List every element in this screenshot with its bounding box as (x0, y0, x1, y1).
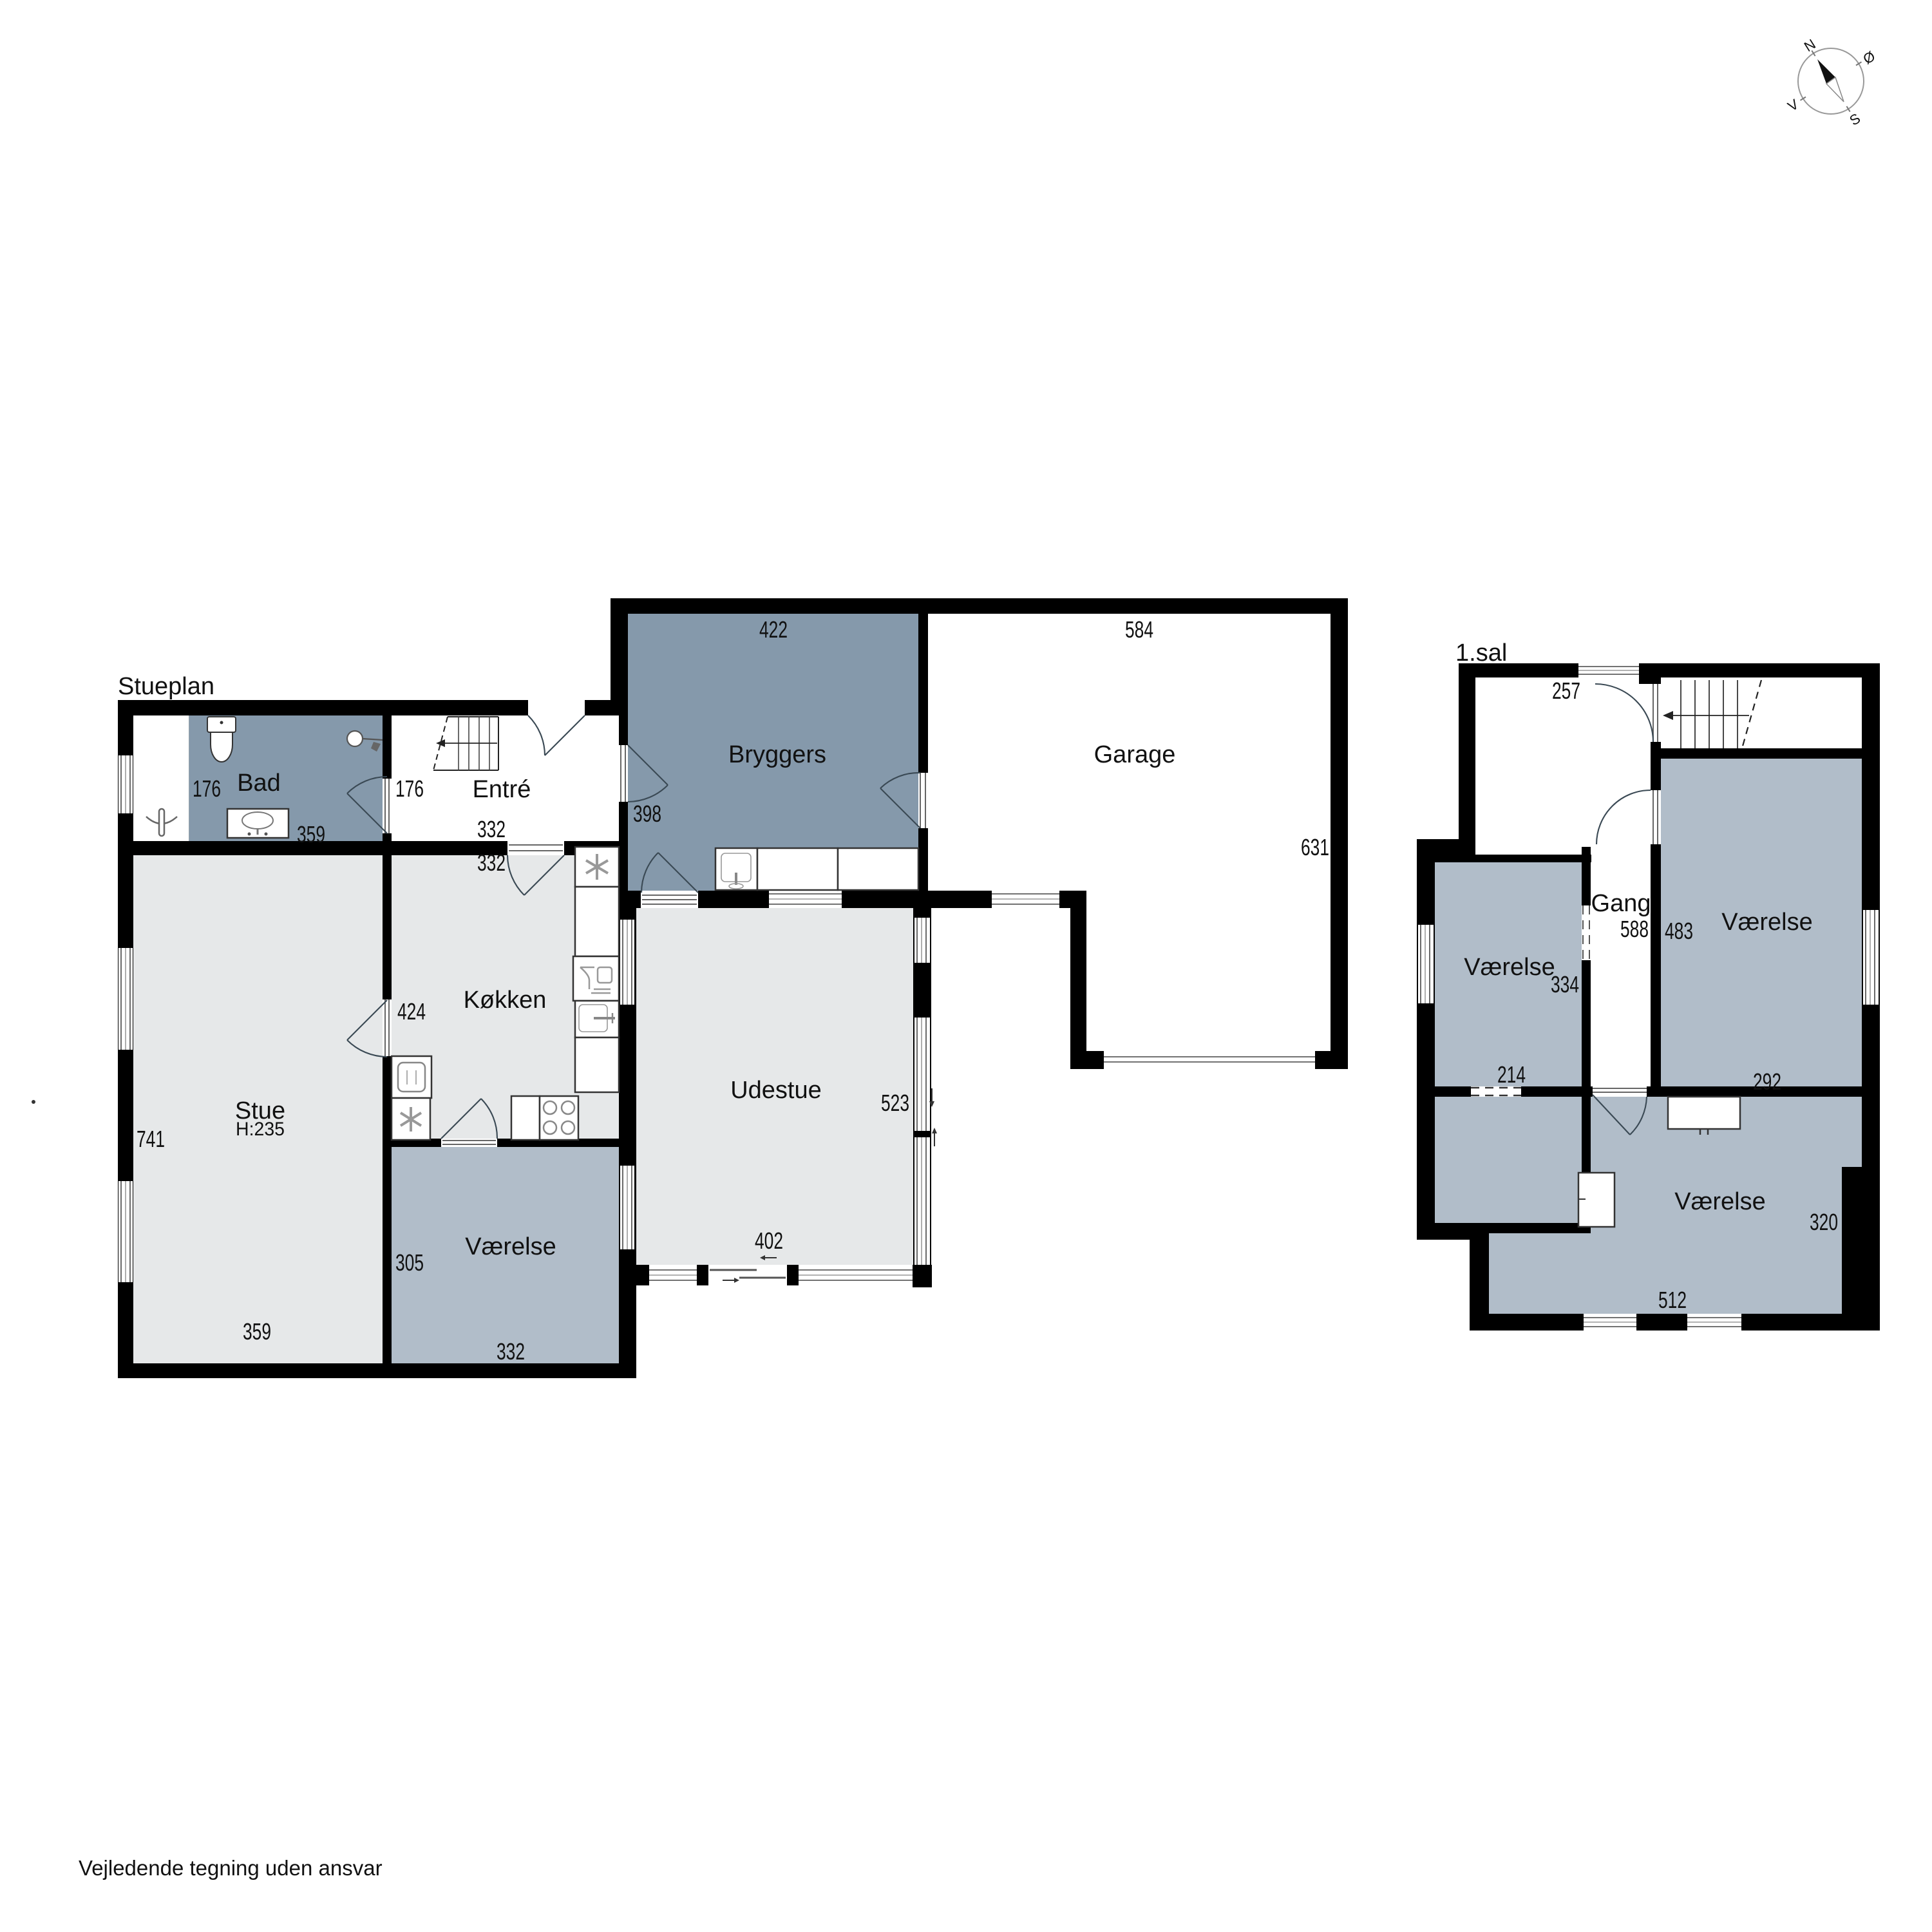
svg-text:631: 631 (1301, 834, 1329, 860)
svg-text:402: 402 (755, 1227, 783, 1254)
svg-text:588: 588 (1620, 916, 1649, 942)
svg-text:332: 332 (497, 1338, 525, 1365)
svg-text:Stueplan: Stueplan (118, 673, 214, 700)
svg-text:Værelse: Værelse (1464, 954, 1555, 981)
svg-text:584: 584 (1125, 616, 1153, 643)
svg-text:359: 359 (243, 1318, 271, 1345)
svg-text:Værelse: Værelse (465, 1233, 556, 1260)
svg-text:359: 359 (297, 821, 325, 848)
svg-text:334: 334 (1551, 971, 1579, 998)
svg-text:Entré: Entré (473, 776, 531, 803)
svg-text:Køkken: Køkken (464, 987, 547, 1014)
svg-text:424: 424 (397, 998, 426, 1025)
svg-text:H:235: H:235 (236, 1119, 285, 1140)
svg-text:512: 512 (1658, 1287, 1687, 1313)
svg-text:Bad: Bad (237, 770, 281, 797)
svg-text:214: 214 (1497, 1061, 1526, 1088)
svg-text:422: 422 (759, 616, 788, 643)
svg-text:292: 292 (1753, 1068, 1781, 1095)
svg-text:176: 176 (395, 775, 424, 802)
svg-text:176: 176 (193, 775, 221, 802)
svg-text:Vejledende tegning uden ansvar: Vejledende tegning uden ansvar (79, 1856, 383, 1880)
svg-text:Udestue: Udestue (730, 1077, 822, 1104)
svg-text:305: 305 (395, 1249, 424, 1276)
svg-text:Gang: Gang (1591, 890, 1651, 917)
svg-text:332: 332 (477, 816, 506, 842)
svg-text:741: 741 (137, 1126, 165, 1152)
svg-text:483: 483 (1665, 918, 1693, 944)
svg-text:Bryggers: Bryggers (728, 741, 826, 768)
svg-text:523: 523 (881, 1090, 909, 1116)
svg-text:Værelse: Værelse (1721, 909, 1813, 936)
svg-text:398: 398 (633, 800, 661, 827)
svg-text:320: 320 (1810, 1209, 1838, 1235)
svg-text:332: 332 (477, 849, 506, 876)
svg-text:257: 257 (1552, 677, 1580, 704)
svg-text:1.sal: 1.sal (1455, 639, 1507, 667)
svg-text:Garage: Garage (1094, 741, 1176, 768)
svg-text:Værelse: Værelse (1674, 1188, 1766, 1215)
